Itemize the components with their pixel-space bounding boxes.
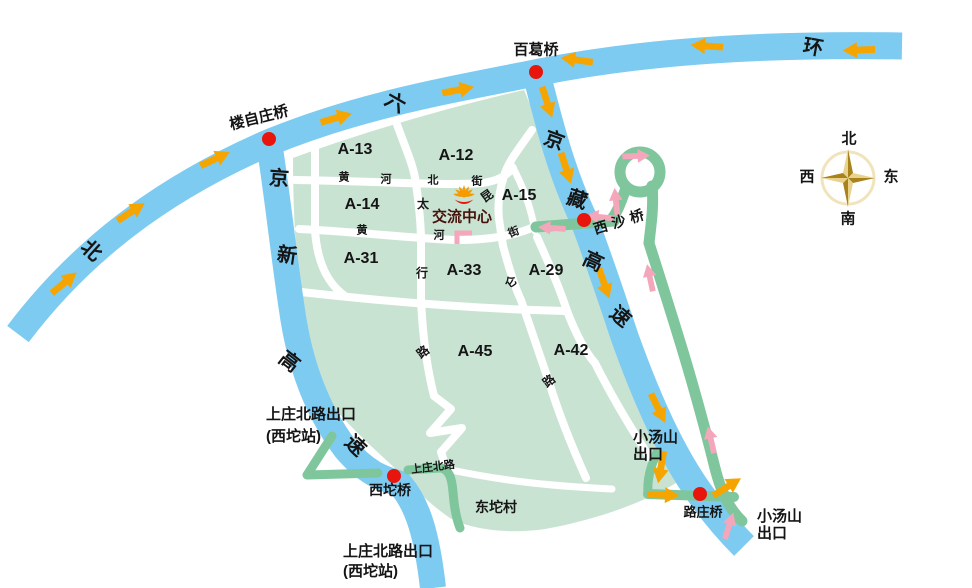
bridge-dot-louzizhuang [262,132,276,146]
compass-north: 北 [841,132,856,147]
village-label-dongtuo: 东坨村 [475,500,517,514]
exit-line: 上庄北路出口 [266,404,356,426]
exit-line: 出口 [633,446,678,463]
street-char-huanghe: 黄 [357,226,368,237]
exit-label-shangzhuang-north: 上庄北路出口 (西坨站) [266,404,356,448]
bridge-dot-xisha [577,213,591,227]
center-name: 交流中心 [432,210,492,225]
street-char-huanghe-north: 北 [428,176,439,187]
area-label-a15: A-15 [502,188,537,204]
site-location-map: 北 六 环 京 新 高 速 京 藏 高 速 楼自庄桥 百葛桥 西沙桥 西坨桥 路… [0,0,972,588]
compass-west: 西 [799,170,814,185]
area-label-a42: A-42 [554,343,589,359]
street-char-huanghe-north: 街 [472,177,483,188]
area-label-a14: A-14 [345,197,380,213]
exit-line: 小汤山 [633,429,678,446]
bridge-label-luzhuang: 路庄桥 [683,506,722,519]
area-label-a33: A-33 [447,263,482,279]
jingxin-char: 新 [276,245,299,268]
street-char-taihang: 行 [416,267,428,279]
area-label-a13: A-13 [338,142,373,158]
exit-line: 小汤山 [757,508,802,525]
street-char-huanghe-north: 河 [381,175,392,186]
street-char-taihang: 太 [417,198,429,210]
exit-label-shangzhuang-north-2: 上庄北路出口 (西坨站) [343,542,433,582]
ring-road-char: 环 [801,36,824,59]
exit-line: 上庄北路出口 [343,542,433,562]
area-label-a29: A-29 [529,263,564,279]
exit-label-xiaotangshan: 小汤山 出口 [633,429,678,463]
area-label-a12: A-12 [439,148,474,164]
exit-label-xiaotangshan-2: 小汤山 出口 [757,508,802,542]
bridge-dot-xituo [387,469,401,483]
compass-south: 南 [840,212,855,227]
exit-line: (西坨站) [343,562,433,582]
street-char-huanghe: 河 [434,231,445,242]
compass-east: 东 [883,170,898,185]
area-label-a45: A-45 [458,344,493,360]
exit-line: 出口 [757,525,802,542]
area-label-a31: A-31 [344,251,379,267]
bridge-dot-luzhuang [693,487,707,501]
exit-line: (西坨站) [266,426,356,448]
bridge-label-xituo: 西坨桥 [369,483,411,497]
bridge-label-baige: 百葛桥 [513,43,558,58]
jingxin-char: 京 [268,168,289,189]
bridge-dot-baige [529,65,543,79]
street-char-huanghe-north: 黄 [339,173,350,184]
loop-entry-connector [649,186,653,243]
